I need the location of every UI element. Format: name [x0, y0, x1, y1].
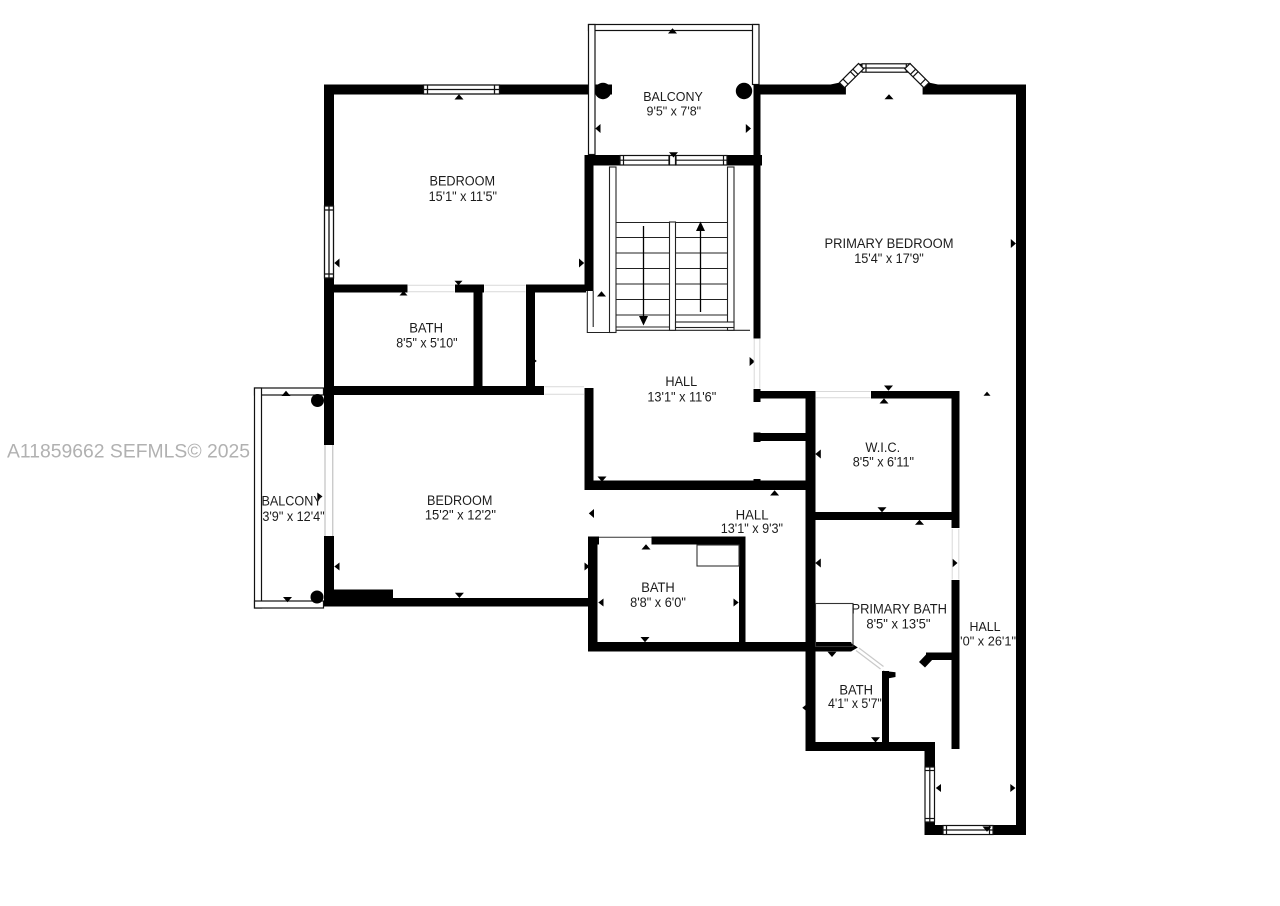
svg-text:PRIMARY BATH: PRIMARY BATH: [852, 602, 947, 618]
svg-text:15'2" x 12'2": 15'2" x 12'2": [425, 508, 496, 524]
svg-text:8'5" x 6'11": 8'5" x 6'11": [853, 455, 914, 471]
svg-text:BATH: BATH: [409, 320, 443, 336]
svg-text:'0" x 26'1": '0" x 26'1": [960, 634, 1016, 648]
svg-text:8'5" x 13'5": 8'5" x 13'5": [866, 617, 930, 633]
svg-text:BALCONY: BALCONY: [261, 494, 322, 510]
svg-text:13'1" x 9'3": 13'1" x 9'3": [721, 521, 783, 537]
svg-text:4'1" x 5'7": 4'1" x 5'7": [828, 696, 882, 712]
svg-text:8'5" x 5'10": 8'5" x 5'10": [396, 335, 457, 351]
svg-text:BALCONY: BALCONY: [643, 90, 703, 104]
svg-text:15'1" x 11'5": 15'1" x 11'5": [429, 189, 497, 205]
svg-text:BATH: BATH: [641, 580, 675, 596]
svg-text:HALL: HALL: [665, 374, 697, 390]
svg-text:PRIMARY BEDROOM: PRIMARY BEDROOM: [825, 236, 954, 252]
svg-text:9'5" x 7'8": 9'5" x 7'8": [647, 105, 702, 119]
svg-text:8'8" x 6'0": 8'8" x 6'0": [630, 595, 686, 611]
svg-text:13'1" x 11'6": 13'1" x 11'6": [647, 390, 716, 406]
svg-text:HALL: HALL: [970, 620, 1001, 634]
svg-text:15'4" x 17'9": 15'4" x 17'9": [854, 251, 924, 267]
svg-text:BEDROOM: BEDROOM: [430, 174, 496, 190]
svg-text:W.I.C.: W.I.C.: [865, 440, 900, 456]
svg-text:3'9" x 12'4": 3'9" x 12'4": [262, 509, 324, 525]
svg-text:A11859662 SEFMLS© 2025: A11859662 SEFMLS© 2025: [7, 441, 250, 463]
